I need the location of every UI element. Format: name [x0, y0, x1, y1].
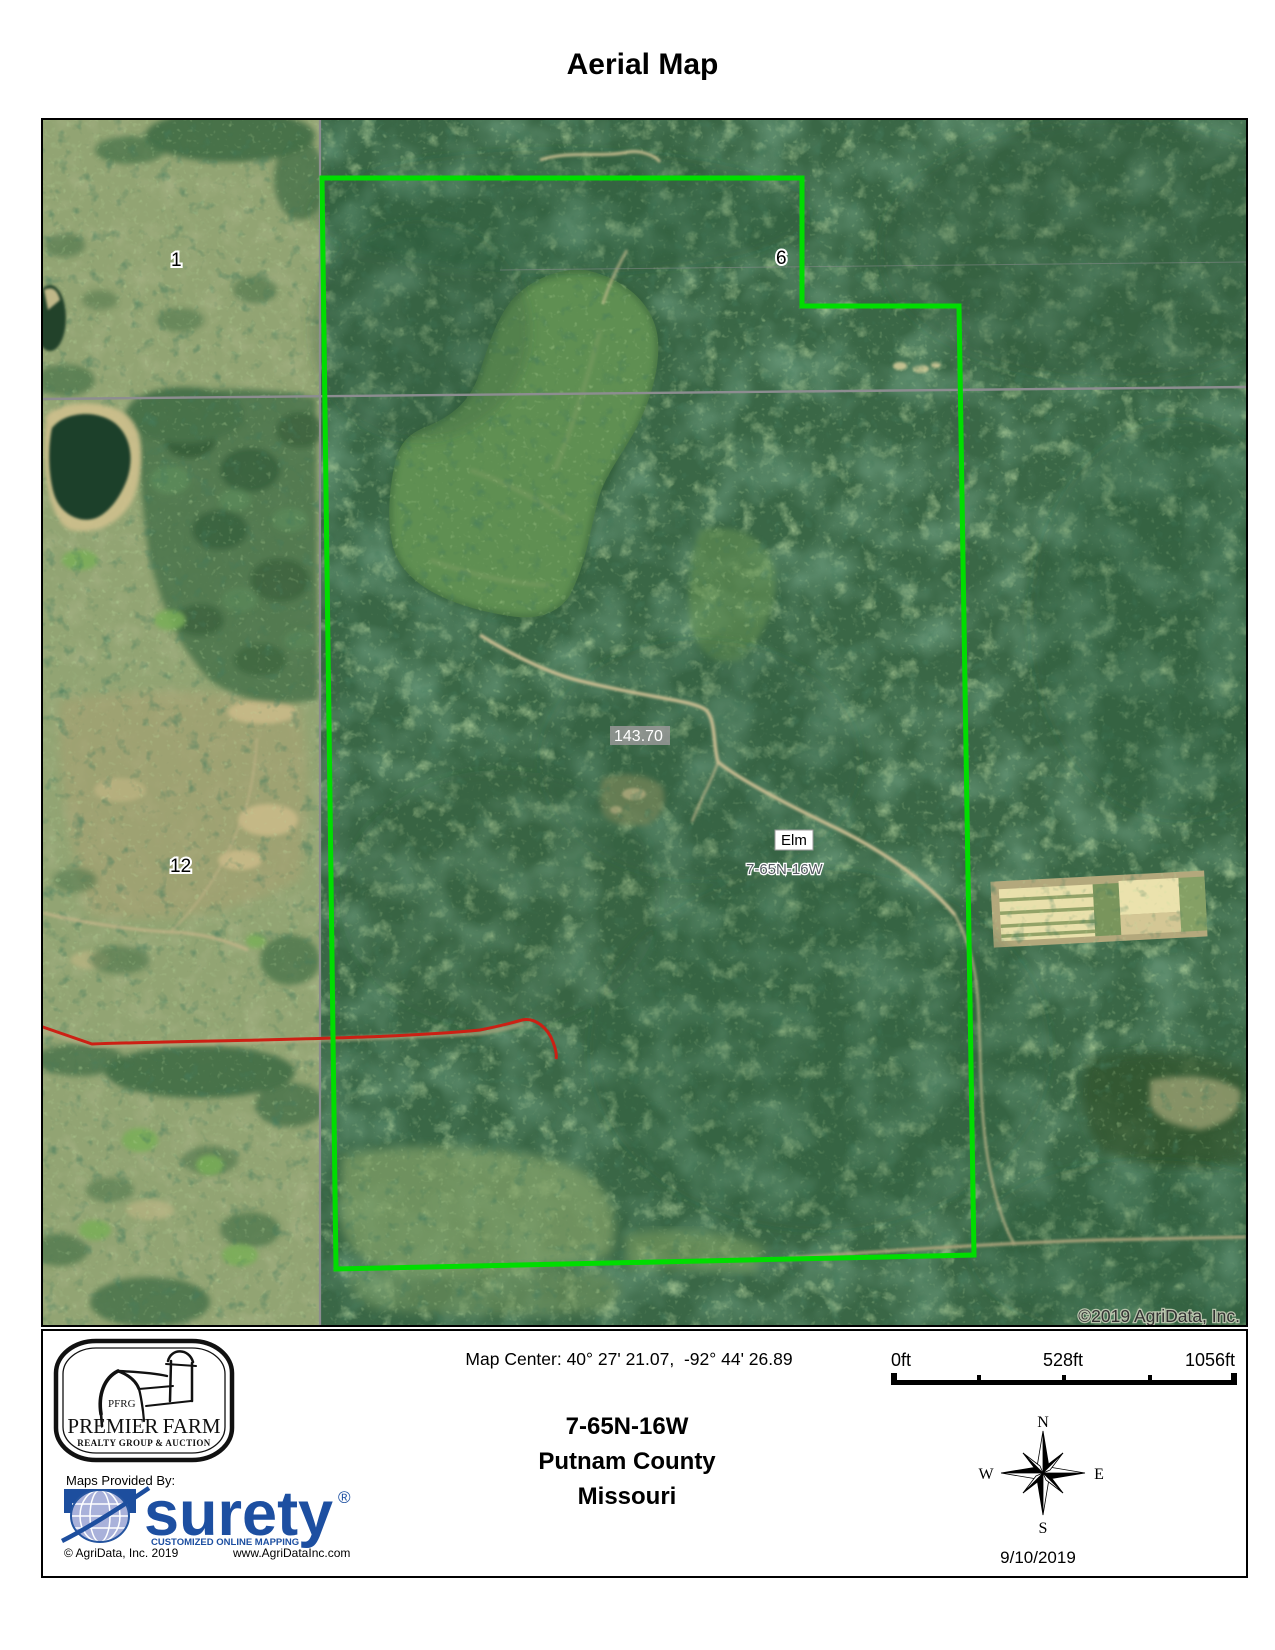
svg-text:S: S	[1039, 1520, 1048, 1537]
svg-text:7-65N-16W: 7-65N-16W	[746, 861, 824, 878]
svg-text:143.70: 143.70	[614, 728, 663, 745]
svg-text:www.AgriDataInc.com: www.AgriDataInc.com	[232, 1546, 350, 1560]
svg-text:12: 12	[170, 856, 191, 877]
svg-text:©2019 AgriData, Inc.: ©2019 AgriData, Inc.	[1078, 1306, 1240, 1325]
svg-text:9/10/2019: 9/10/2019	[1000, 1548, 1076, 1567]
svg-text:Elm: Elm	[781, 832, 807, 849]
svg-text:6: 6	[776, 248, 787, 269]
svg-text:1: 1	[171, 250, 182, 271]
svg-text:© AgriData, Inc. 2019: © AgriData, Inc. 2019	[64, 1546, 179, 1560]
